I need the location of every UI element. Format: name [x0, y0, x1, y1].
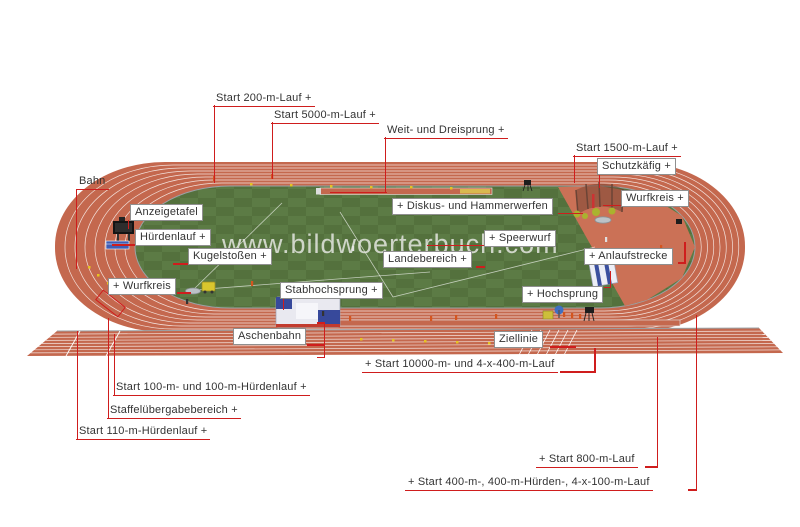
leader-line: [112, 244, 136, 246]
leader-line: [558, 213, 583, 215]
leader-line: [560, 371, 596, 373]
leader-line: [77, 331, 79, 440]
leader-line: [307, 344, 325, 346]
leader-line: [385, 137, 387, 193]
label-start-400m[interactable]: + Start 400-m-, 400-m-Hürden-, 4-x-100-m…: [405, 476, 653, 491]
stadium-diagram: www.bildwoerterbuch.com Start 200-m-Lauf…: [0, 0, 800, 527]
label-bahn[interactable]: Bahn: [76, 175, 109, 190]
leader-line: [594, 348, 596, 373]
leader-line: [317, 322, 325, 324]
leader-line: [173, 263, 189, 265]
leader-line: [476, 266, 485, 268]
label-wurfkreis-right[interactable]: Wurfkreis +: [621, 190, 689, 207]
pole-vault-runway: [338, 320, 680, 326]
label-schutzkaefig[interactable]: Schutzkäfig +: [597, 158, 676, 175]
label-start-110m-huerden[interactable]: Start 110-m-Hürdenlauf +: [76, 425, 210, 440]
label-kugelstossen[interactable]: Kugelstoßen +: [188, 248, 272, 265]
leader-line: [330, 192, 387, 194]
label-aschenbahn[interactable]: Aschenbahn: [233, 328, 306, 345]
leader-line: [603, 205, 622, 207]
pole-vault-mat: [276, 297, 340, 327]
label-weit-dreisprung[interactable]: Weit- und Dreisprung +: [384, 124, 508, 139]
label-huerdenlauf[interactable]: Hürdenlauf +: [135, 229, 211, 246]
label-hochsprung[interactable]: + Hochsprung: [522, 286, 603, 303]
label-wurfkreis-left[interactable]: + Wurfkreis: [108, 278, 176, 295]
label-start-800m[interactable]: + Start 800-m-Lauf: [536, 453, 638, 468]
leader-line: [599, 174, 601, 188]
leader-line: [214, 105, 216, 183]
label-start-200m[interactable]: Start 200-m-Lauf +: [213, 92, 315, 107]
leader-line: [427, 245, 485, 247]
leader-line: [128, 220, 130, 229]
label-stabhochsprung[interactable]: Stabhochsprung +: [280, 282, 383, 299]
label-anlaufstrecke[interactable]: + Anlaufstrecke: [584, 248, 673, 265]
sprint-straight: [27, 328, 783, 357]
leader-line: [283, 298, 285, 310]
leader-line: [657, 337, 659, 468]
label-start-10000m-4x400m[interactable]: + Start 10000-m- und 4-x-400-m-Lauf: [362, 358, 558, 373]
label-ziellinie[interactable]: Ziellinie: [494, 331, 543, 348]
label-staffeluebergabebereich[interactable]: Staffelübergabebereich +: [107, 404, 241, 419]
label-speerwurf[interactable]: + Speerwurf: [484, 230, 556, 247]
label-diskus-hammerwerfen[interactable]: + Diskus- und Hammerwerfen: [392, 198, 553, 215]
throwing-circle: [595, 217, 611, 223]
leader-line: [177, 292, 191, 294]
sand-pit: [460, 189, 490, 194]
label-start-100m[interactable]: Start 100-m- und 100-m-Hürdenlauf +: [113, 381, 310, 396]
label-start-1500m[interactable]: Start 1500-m-Lauf +: [573, 142, 681, 157]
leader-line: [550, 346, 576, 348]
leader-line: [610, 271, 612, 287]
leader-line: [574, 155, 576, 183]
leader-line: [684, 242, 686, 263]
label-start-5000m[interactable]: Start 5000-m-Lauf +: [271, 109, 379, 124]
leader-line: [272, 122, 274, 179]
leader-line: [317, 357, 325, 359]
leader-line: [324, 322, 326, 358]
leader-line: [76, 189, 78, 269]
equipment-cart: [202, 282, 215, 291]
label-anzeigetafel[interactable]: Anzeigetafel: [130, 204, 203, 221]
label-landebereich[interactable]: Landebereich +: [383, 251, 472, 268]
leader-line: [696, 315, 698, 491]
